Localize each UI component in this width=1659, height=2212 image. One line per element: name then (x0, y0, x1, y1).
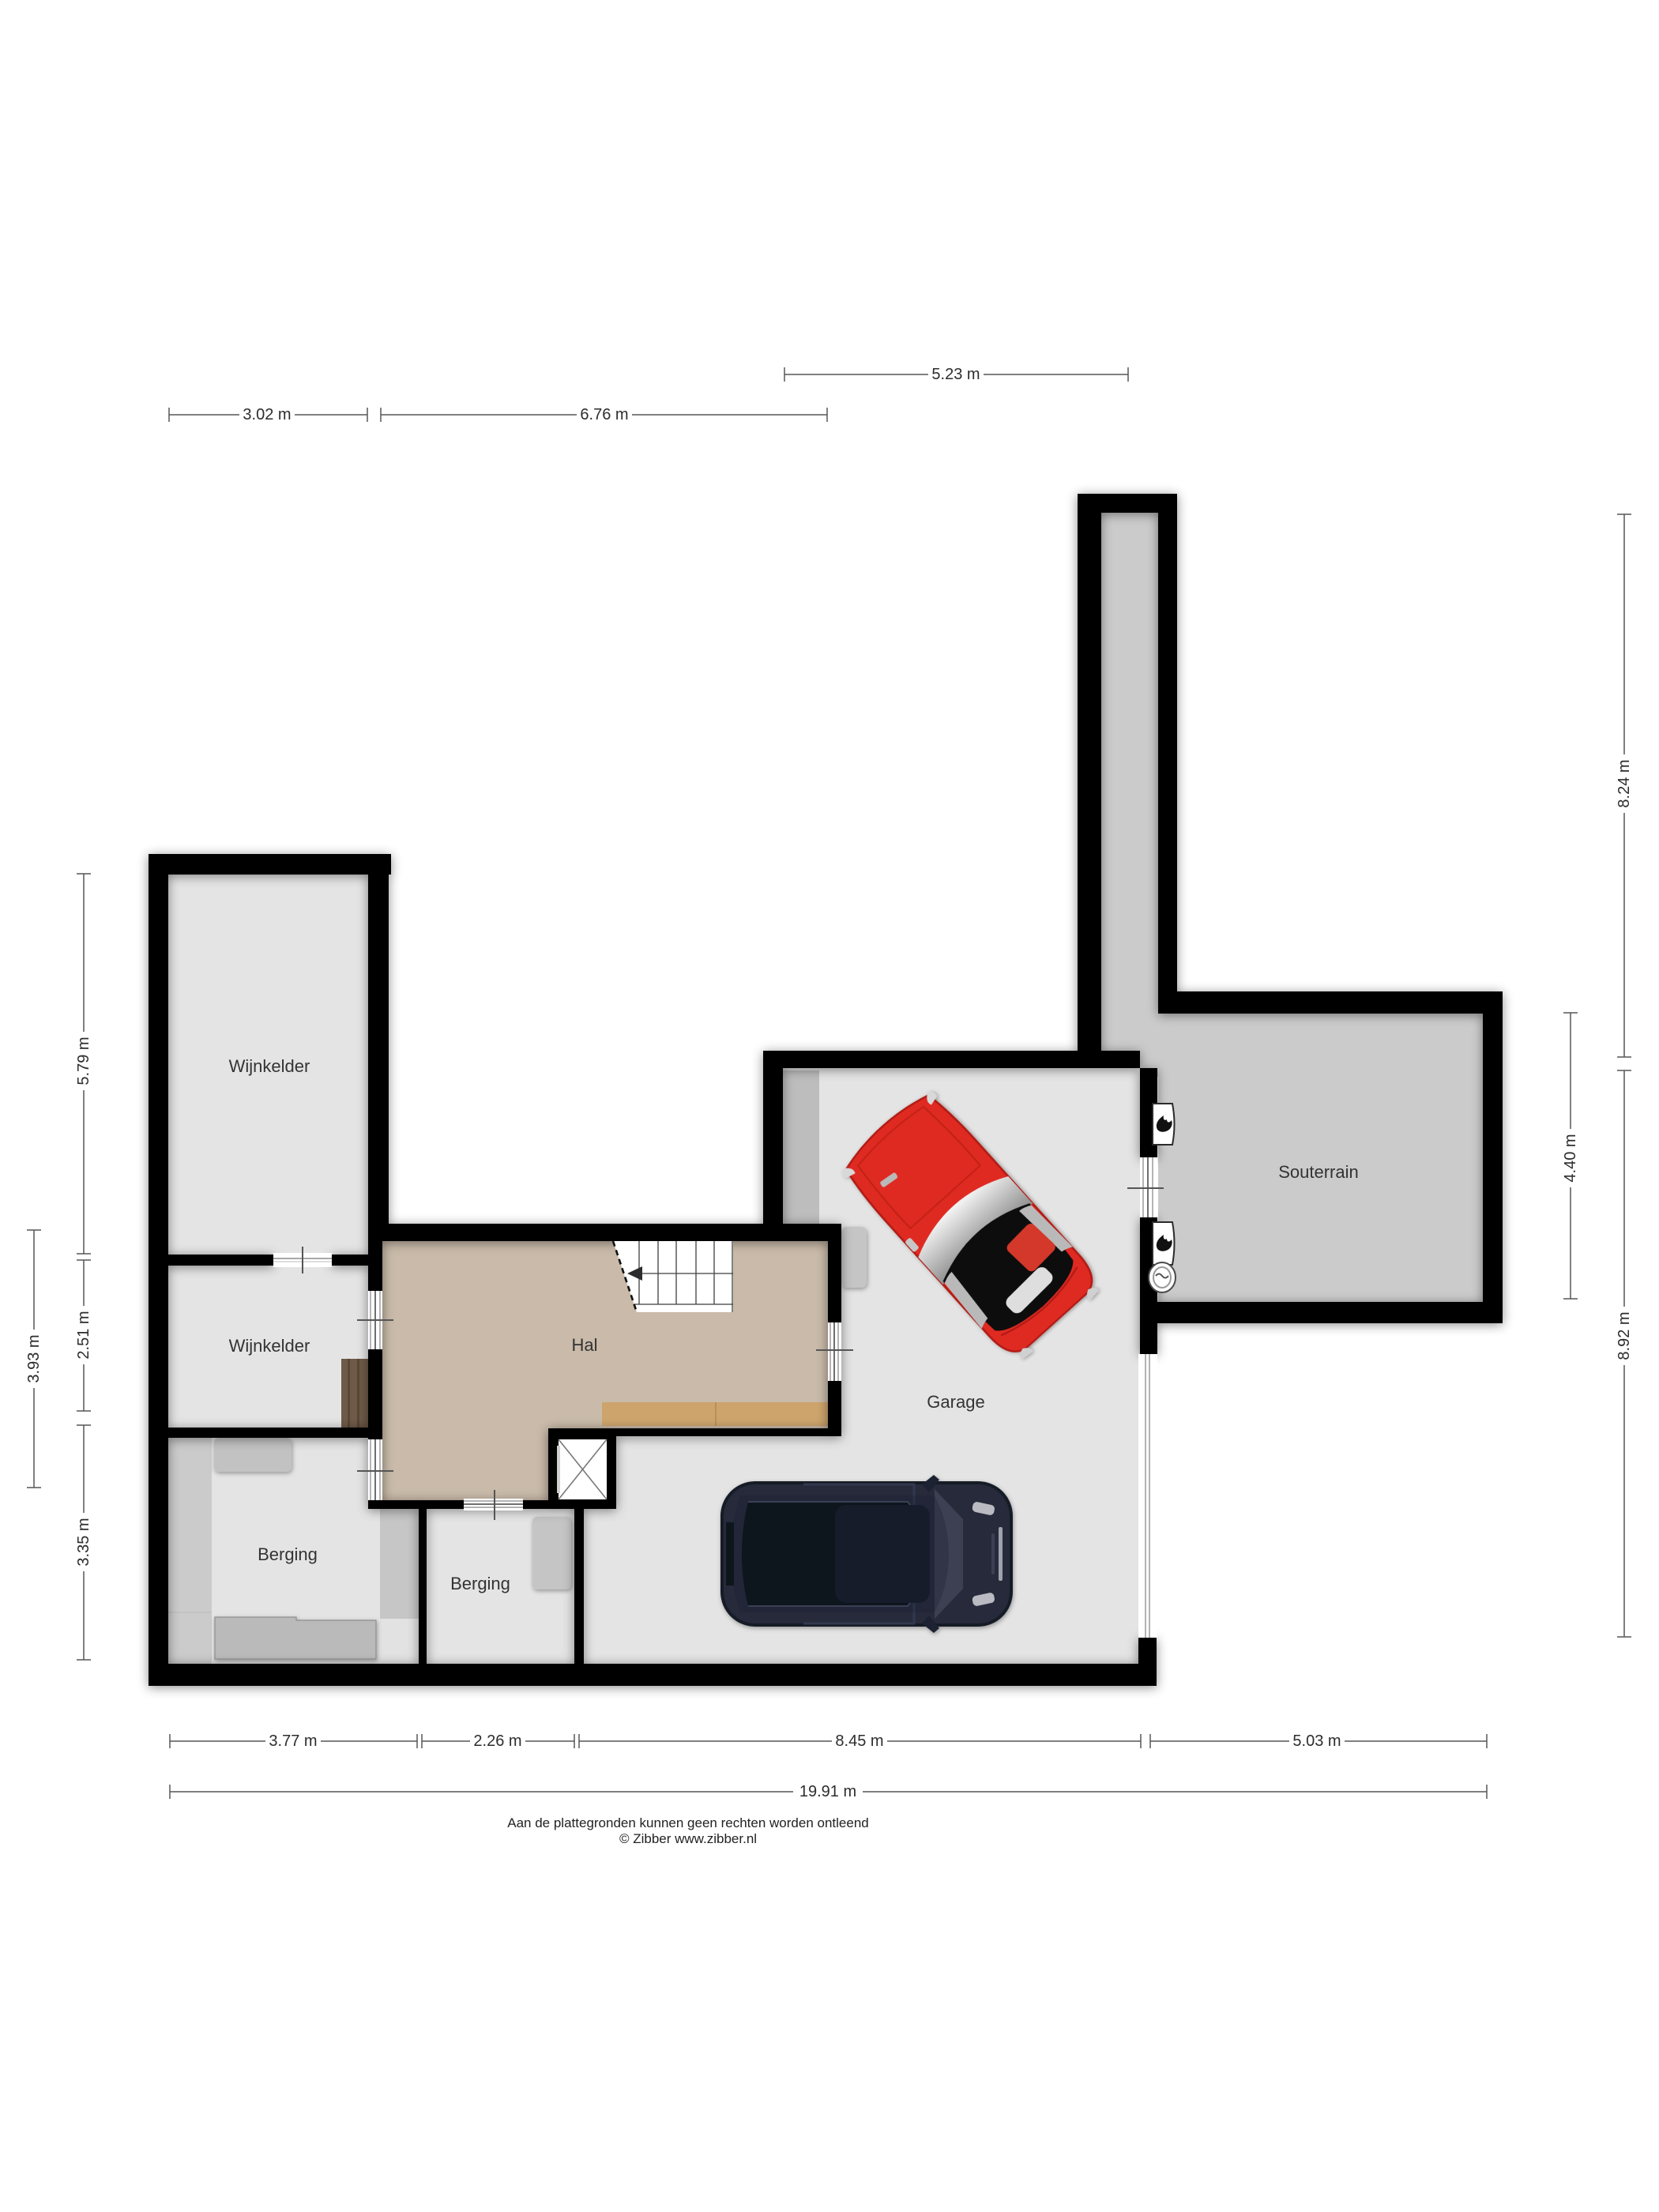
svg-text:Aan de plattegronden kunnen ge: Aan de plattegronden kunnen geen rechten… (507, 1815, 868, 1830)
svg-text:Garage: Garage (927, 1392, 984, 1412)
svg-text:19.91 m: 19.91 m (799, 1783, 856, 1800)
svg-text:3.35 m: 3.35 m (75, 1518, 92, 1566)
svg-text:2.51 m: 2.51 m (75, 1311, 92, 1359)
svg-text:8.45 m: 8.45 m (835, 1732, 883, 1750)
svg-text:8.24 m: 8.24 m (1616, 759, 1633, 807)
svg-text:5.03 m: 5.03 m (1292, 1732, 1341, 1750)
svg-text:3.77 m: 3.77 m (269, 1732, 317, 1750)
svg-text:Wijnkelder: Wijnkelder (229, 1336, 310, 1356)
svg-text:4.40 m: 4.40 m (1562, 1134, 1579, 1182)
svg-text:Wijnkelder: Wijnkelder (229, 1056, 310, 1076)
svg-text:6.76 m: 6.76 m (580, 406, 628, 423)
svg-text:© Zibber www.zibber.nl: © Zibber www.zibber.nl (619, 1831, 757, 1846)
svg-text:8.92 m: 8.92 m (1616, 1311, 1633, 1360)
svg-text:5.23 m: 5.23 m (931, 366, 980, 383)
svg-text:Berging: Berging (450, 1574, 510, 1593)
svg-text:Souterrain: Souterrain (1278, 1162, 1359, 1182)
svg-text:2.26 m: 2.26 m (473, 1732, 521, 1750)
svg-text:3.02 m: 3.02 m (243, 406, 291, 423)
svg-text:5.79 m: 5.79 m (75, 1036, 92, 1085)
svg-text:Hal: Hal (571, 1335, 597, 1355)
svg-text:Berging: Berging (258, 1544, 318, 1564)
svg-text:3.93 m: 3.93 m (25, 1334, 43, 1382)
